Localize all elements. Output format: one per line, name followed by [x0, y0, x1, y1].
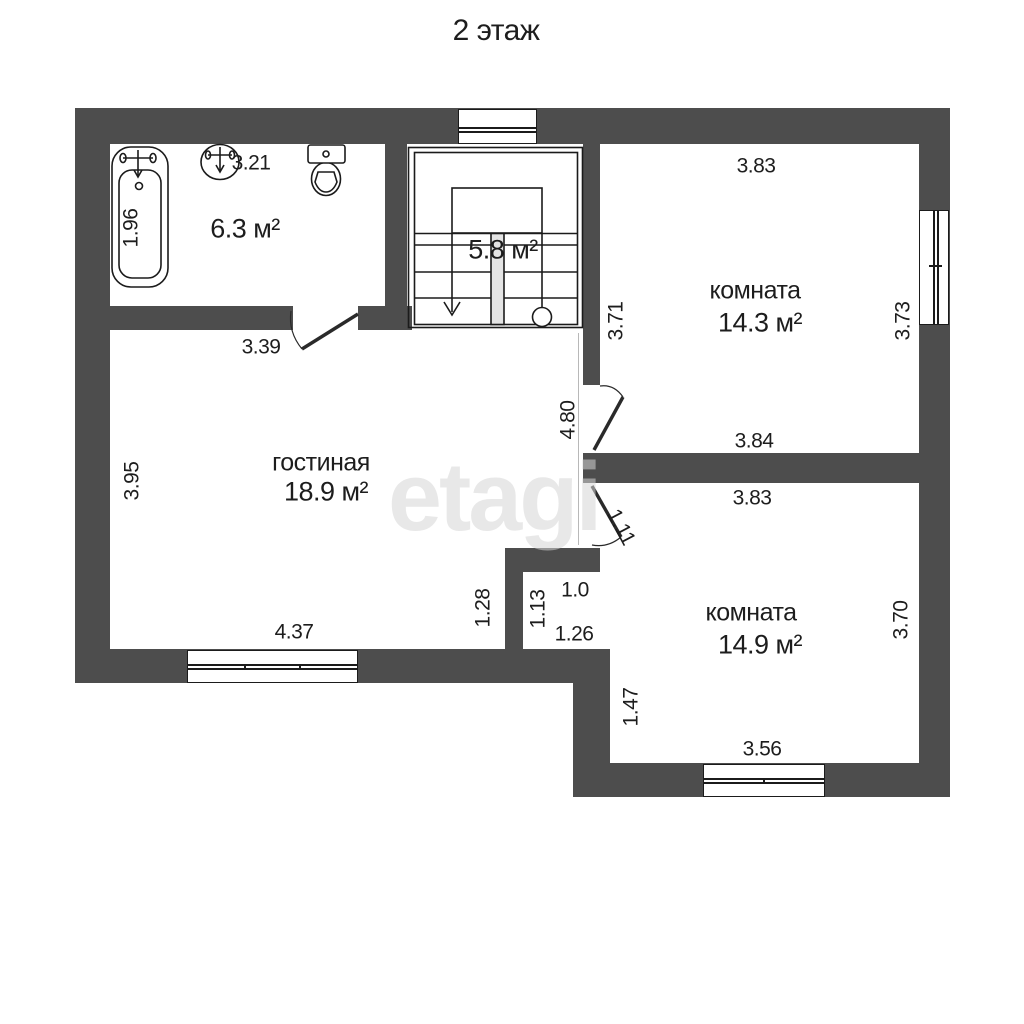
floor-plan: 2 этаж	[0, 0, 1024, 1024]
dimension-label: 3.70	[891, 601, 912, 640]
room-name-label: гостиная	[272, 451, 370, 476]
dimension-label: 1.13	[528, 590, 549, 629]
room-area-label: 5.8 м²	[468, 237, 538, 264]
dimension-label: 3.73	[893, 302, 914, 341]
dimension-label: 3.71	[606, 302, 627, 341]
room-area-label: 6.3 м²	[210, 216, 280, 243]
room-area-label: 18.9 м²	[284, 479, 368, 506]
dimension-label: 3.95	[122, 462, 143, 501]
dimension-label: 1.47	[621, 688, 642, 727]
dimension-label: 1.96	[121, 209, 142, 248]
dimension-label: 3.56	[743, 739, 782, 760]
dimension-label: 3.83	[737, 156, 776, 177]
dimension-label: 1.28	[473, 589, 494, 628]
dimension-label: 3.21	[232, 153, 271, 174]
labels-layer: 3.211.966.3 м²5.8 м²3.83комната14.3 м²3.…	[0, 0, 1024, 1024]
dimension-label: 4.37	[275, 622, 314, 643]
room-area-label: 14.9 м²	[718, 632, 802, 659]
dimension-label: 1.0	[561, 580, 589, 601]
dimension-label: 1.11	[603, 506, 639, 549]
dimension-label: 3.83	[733, 488, 772, 509]
dimension-label: 1.26	[555, 624, 594, 645]
room-name-label: комната	[709, 279, 800, 304]
room-area-label: 14.3 м²	[718, 310, 802, 337]
room-name-label: комната	[705, 601, 796, 626]
dimension-label: 3.39	[242, 337, 281, 358]
dimension-label: 4.80	[558, 401, 579, 440]
dimension-label: 3.84	[735, 431, 774, 452]
